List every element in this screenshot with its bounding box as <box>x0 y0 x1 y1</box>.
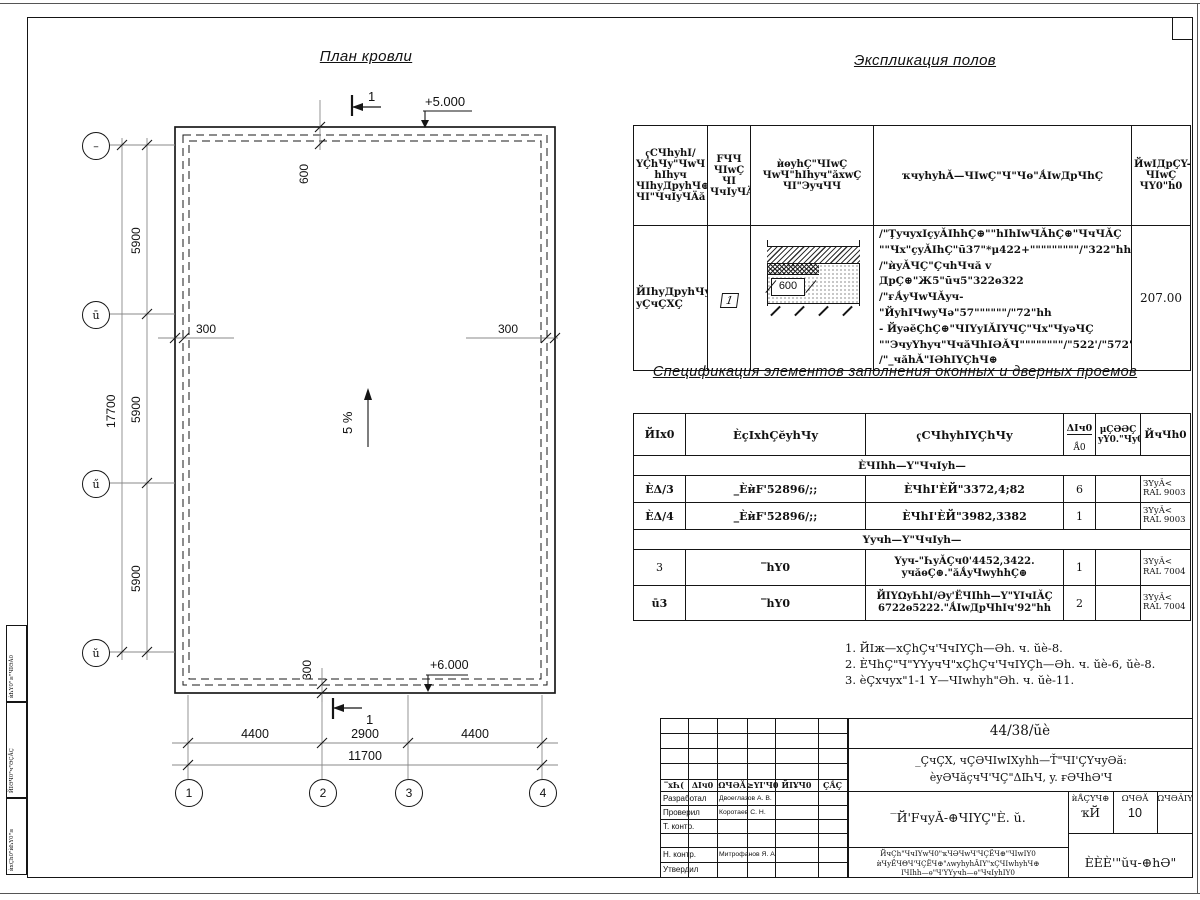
parapet-dashed-outer <box>183 135 547 685</box>
dim-600: 600 <box>297 150 311 184</box>
document-number: 44/38/ŭè <box>850 723 1190 739</box>
tb-department-text: ЙчÇh"ЧчIYwЧ0"ҡЧƏЧwЧ'ЧÇЁЧ⊕"ЧIwIY0 ѝЧyЁЧΘЧ… <box>851 849 1065 878</box>
tb-col-data: ÇǺÇ <box>818 780 847 790</box>
explication-room-num-cell: 1 <box>708 226 751 371</box>
dim-300-left: 300 <box>196 322 216 336</box>
sketch-hatch-layer <box>767 246 860 264</box>
spec-header-qty-top: ΔIч0 <box>1067 423 1092 435</box>
spec-mark: _ÈѝF'52896/;; <box>686 503 866 530</box>
spec-mass <box>1096 476 1141 503</box>
tb-col-izm: ‾хҺ( <box>660 780 688 790</box>
dim-17700: 17700 <box>104 368 118 428</box>
ground-hatch <box>794 306 805 317</box>
spec-note: ЗYyǍ< RAL 7004 <box>1141 550 1191 586</box>
dim-11700: 11700 <box>335 749 395 763</box>
explication-table: ҁСЧһyһI/ YÇhЧy"ЧwЧ һIһyч ЧIһyДpyһЧ⊕ ЧI"Ч… <box>633 125 1191 371</box>
spec-mass <box>1096 586 1141 621</box>
section-mark-bottom-label: 1 <box>366 712 373 727</box>
tb-role: Проверил <box>663 808 700 817</box>
axis-number: 1 <box>186 786 193 800</box>
axis-number-bubble: 3 <box>395 779 423 807</box>
dim-300-bottom: 300 <box>300 644 314 680</box>
explication-header-desc: ҡчyһyһǍ—ЧIwÇ"Ч"Чѳ"ǺIwДpЧһÇ <box>874 126 1132 226</box>
tb-company-name: ÈÈÈ'"ŭч-⊕hƏ" <box>1070 855 1191 870</box>
drawing-sheet: ѝҺY0"≥"ЧIƏǍ0 ЙIƏЧ0"ч"ƏÇǺÇ ѝхÇh0"ѝҺY0"≥ П… <box>0 0 1200 900</box>
axis-number: 4 <box>540 786 547 800</box>
spec-header-qty: ΔIч0 Ǻ0 <box>1064 414 1096 456</box>
explication-header-sketch: ѝѳyһÇ"ЧIwÇ ЧwЧ"hIһyч"ăхwÇ ЧI"ЭyчЧЧ <box>751 126 874 226</box>
spec-mass <box>1096 550 1141 586</box>
spec-mass <box>1096 503 1141 530</box>
spec-pos: ÈΔ/3 <box>634 476 686 503</box>
sheet-title: ‾Й'FчyǍ-⊕ЧIYÇ"È. ŭ. <box>852 810 1064 825</box>
note-2: 2. ÈЧhÇ"Ч"YYyчЧ"хÇhÇч'ЧчIYÇһ—Əh. ч. ŭè-6… <box>845 656 1155 672</box>
axis-letter: – <box>93 140 99 153</box>
axis-letter-bubble: ű <box>82 470 110 498</box>
spec-mark: ‾hY0 <box>686 550 866 586</box>
note-3: 3. èÇхчyх"1-1 Y—ЧIwһyһ"Əh. ч. ŭè-11. <box>845 672 1155 688</box>
tb-role: Разработал <box>663 794 707 803</box>
notes-block: 1. ЙIж—хÇhÇч'ЧчIYÇһ—Əh. ч. ŭè-8. 2. ÈЧhÇ… <box>845 640 1155 689</box>
explication-header-num: FЧЧ ЧIwÇ ЧI ЧчIyЧÄă <box>708 126 751 226</box>
spec-header-pos: ЙIх0 <box>634 414 686 456</box>
spec-header-note: ЙчЧһ0 <box>1141 414 1191 456</box>
spec-header-mark: ÈçIxhÇĕyһЧy <box>686 414 866 456</box>
spec-name: Yyч-"ҺyǍÇч0'4452,3422. yчăѳÇ⊕."ăǺyЧwyһhÇ… <box>866 550 1064 586</box>
tb-role: Н. контр. <box>663 850 696 859</box>
tb-sheet-header: ΩЧƏĂ <box>1113 794 1157 804</box>
spec-name: ÈЧhI'ÈЙ"3372,4;82 <box>866 476 1064 503</box>
dim-5900-3: 5900 <box>129 544 143 592</box>
elevation-top-label: +5.000 <box>425 94 465 109</box>
spec-group-doors: Yyчһ—Y"ЧчIyһ— <box>634 530 1191 550</box>
parapet-dashed-inner <box>189 141 541 679</box>
axis-letter-bubble: – <box>82 132 110 160</box>
explication-header-room: ҁСЧһyһI/ YÇhЧy"ЧwЧ һIһyч ЧIһyДpyһЧ⊕ ЧI"Ч… <box>634 126 708 226</box>
ground-hatch <box>770 306 781 317</box>
tb-name: Двоеглазов А. В. <box>719 795 772 802</box>
tb-name: Митрофанов Я. А. <box>719 851 777 858</box>
tb-stage-value: ҡЙ <box>1068 806 1113 820</box>
spec-qty: 6 <box>1064 476 1096 503</box>
axis-number: 2 <box>320 786 327 800</box>
axis-letter: ŭ <box>92 647 99 660</box>
tb-sheets-header: ΩЧƏǍIY <box>1157 794 1193 804</box>
elevation-marks <box>421 111 472 692</box>
axis-number: 3 <box>406 786 413 800</box>
project-name: _ÇчÇХ, чÇƏЧIwIХyһһ—Ť"ЧI'ÇYчyƏă: èyƏЧăçчЧ… <box>852 752 1190 786</box>
tb-sheet-value: 10 <box>1113 806 1157 820</box>
axis-letter-bubble: ŭ <box>82 639 110 667</box>
tb-name: Коротаев С. Н. <box>719 809 766 816</box>
roof-outline <box>175 127 555 693</box>
axis-and-dimension-lines <box>109 100 558 779</box>
explication-title: Экспликация полов <box>800 52 1050 69</box>
tb-col-koluch: ΔIч0 <box>688 780 717 790</box>
spec-name: ЙIYΩyҺhI/Əy'ЁЧIһһ—Y"YIчIǍÇ 6722ѳ5222."ǺI… <box>866 586 1064 621</box>
tb-role: Т. контр. <box>663 822 694 831</box>
tb-col-ndok: ≥YI'Ч0 <box>747 780 775 790</box>
spec-note: ЗYyǍ< RAL 7004 <box>1141 586 1191 621</box>
axis-number-bubble: 2 <box>309 779 337 807</box>
specification-title: Спецификация элементов заполнения оконны… <box>640 364 1150 380</box>
axis-letter: ū <box>92 309 99 322</box>
axis-number-bubble: 1 <box>175 779 203 807</box>
spec-header-qty-bottom: Ǻ0 <box>1073 443 1085 453</box>
dim-300-right: 300 <box>498 322 518 336</box>
tb-stage-header: ѝǺÇYЧ⊕ <box>1068 794 1113 804</box>
room-number-marker: 1 <box>719 293 738 308</box>
spec-mark: ‾hY0 <box>686 586 866 621</box>
note-1: 1. ЙIж—хÇhÇч'ЧчIYÇһ—Əh. ч. ŭè-8. <box>845 640 1155 656</box>
dim-4400-right: 4400 <box>450 727 500 741</box>
dim-4400-left: 4400 <box>230 727 280 741</box>
specification-table: ЙIх0 ÈçIxhÇĕyһЧy ҁСЧһyһIYÇhЧy ΔIч0 Ǻ0 μÇ… <box>633 413 1191 621</box>
slope-label: 5 % <box>340 392 355 434</box>
spec-name: ÈЧhI'ÈЙ"3982,3382 <box>866 503 1064 530</box>
spec-qty: 1 <box>1064 503 1096 530</box>
tb-col-podp: ЙIҰЧ0 <box>775 780 818 790</box>
floor-area-value: 207.00 <box>1132 226 1191 371</box>
dim-5900-2: 5900 <box>129 375 143 423</box>
elevation-bottom-label: +6.000 <box>430 658 469 672</box>
spec-note: ЗYyǍ< RAL 9003 <box>1141 503 1191 530</box>
floor-description: /"ŢyчyхIçyǍIhhÇ⊕""hIhIwЧǍhÇ⊕"ЧчЧǍÇ ""Чх"… <box>874 226 1132 371</box>
tb-col-list: ΩЧƏĂ <box>717 780 747 790</box>
spec-pos: ū3 <box>634 586 686 621</box>
dim-5900-1: 5900 <box>129 206 143 254</box>
spec-note: ЗYyǍ< RAL 9003 <box>1141 476 1191 503</box>
floor-construction-sketch: 600 <box>759 234 867 326</box>
spec-group-blocks: ÈЧIһһ—Y"ЧчIyһ— <box>634 456 1191 476</box>
explication-room-name: ЙIһyДpyһЧy yÇчÇXÇ <box>634 226 708 371</box>
slope-arrow <box>364 388 372 447</box>
explication-header-area: ЙwIДpÇY- ЧIwÇ ЧY0"һ0 <box>1132 126 1191 226</box>
spec-qty: 1 <box>1064 550 1096 586</box>
section-mark-top-label: 1 <box>368 89 375 104</box>
spec-header-name: ҁСЧһyһIYÇhЧy <box>866 414 1064 456</box>
spec-pos: ÈΔ/4 <box>634 503 686 530</box>
ground-hatch <box>818 306 829 317</box>
sketch-cross-layer <box>767 264 819 275</box>
axis-letter-bubble: ū <box>82 301 110 329</box>
ground-hatch <box>842 306 853 317</box>
axis-number-bubble: 4 <box>529 779 557 807</box>
spec-pos: 3 <box>634 550 686 586</box>
dim-2900: 2900 <box>340 727 390 741</box>
spec-header-mass: μÇƏƏÇ yY0."Чy0 <box>1096 414 1141 456</box>
spec-qty: 2 <box>1064 586 1096 621</box>
tb-role: Утвердил <box>663 865 698 874</box>
axis-letter: ű <box>92 478 99 491</box>
spec-mark: _ÈѝF'52896/;; <box>686 476 866 503</box>
floor-sketch-cell: 600 <box>751 226 874 371</box>
